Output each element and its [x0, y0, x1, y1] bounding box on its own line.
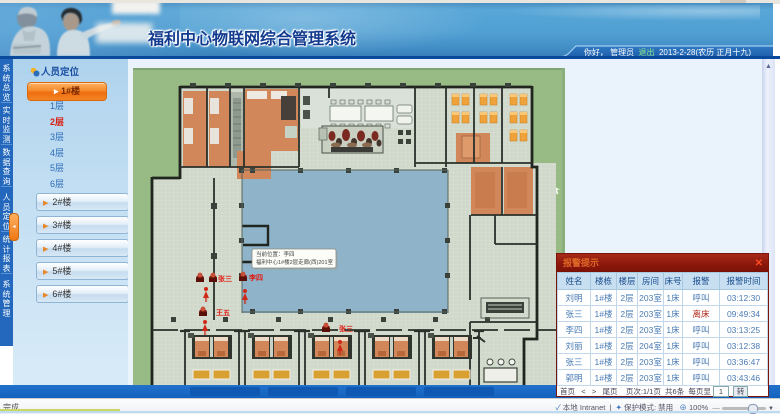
svg-text:李四: 李四	[248, 273, 263, 282]
svg-text:当前位置：李四: 当前位置：李四	[256, 250, 295, 258]
svg-text:张三: 张三	[339, 324, 353, 333]
svg-text:福利中心1#楼2层走廊(西)201室: 福利中心1#楼2层走廊(西)201室	[256, 258, 334, 266]
svg-text:张三: 张三	[218, 274, 232, 283]
svg-text:王五: 王五	[216, 309, 230, 317]
